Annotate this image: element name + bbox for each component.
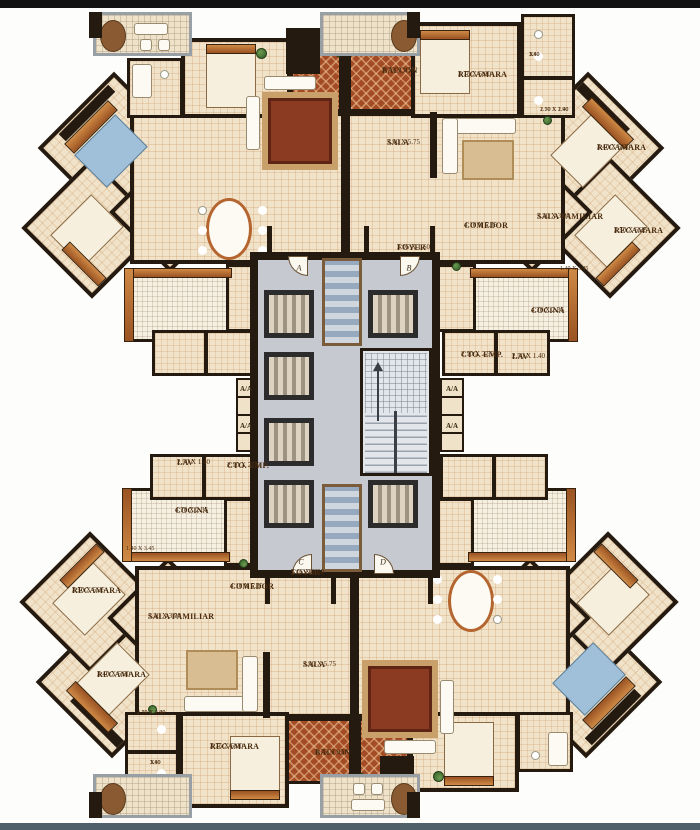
ac-closet-label: A/A [446,385,458,393]
entry-door-letter: C [298,558,303,567]
label-line: 3.40 [529,52,540,60]
label-line: 3.05 X 1.60 [397,243,430,252]
label-line: 3.50 X 5.35 [614,226,647,235]
label-line: 3.75 X 1.50 [382,66,415,75]
label-line: 2.50 X 1.40 [177,458,210,467]
label-line: 4.70 X 2.35 [531,306,564,315]
label-line: 3.05 X 1.60 [291,568,324,577]
label-line: 2.50 X 2.40 [137,710,165,718]
label-line: 3.75 X 5.00 [210,742,243,751]
entry-door-letter: D [380,558,386,567]
label-line: 4.10 X 5.35 [230,582,263,591]
label-line: 1.40 X 3.45 [126,546,154,554]
ac-closet-label: A/A [446,422,458,430]
floor-plan: BALCON3.75 X 1.50RECAMARA3.75 X 5.00SALA… [0,0,700,830]
label-line: 3.40 X 5.50 [597,143,630,152]
label-line: 4.70 X 2.35 [175,506,208,515]
label-line: 2.10 X 2.55 [227,461,260,470]
labels-layer: BALCON3.75 X 1.50RECAMARA3.75 X 5.00SALA… [0,0,700,830]
label-line: 3.75 X 5.00 [458,70,491,79]
label-line: 2.50 X 2.40 [540,107,568,115]
label-line: 3.50 X 5.35 [72,586,105,595]
label-line: 3.90 X 5.75 [387,138,420,147]
entry-door-letter: A [297,264,302,273]
label-line: 3.40 X 5.50 [97,670,130,679]
entry-door-letter: B [407,264,412,273]
label-line: 3.20 X 3.90 [537,212,570,221]
label-line: 3.90 X 5.75 [303,660,336,669]
label-line: 1.40 X 3.45 [560,266,588,274]
label-line: 4.10 X 5.35 [464,221,497,230]
label-line: 2.10 X 2.55 [461,350,494,359]
label-line: 3.75 X 1.50 [315,748,348,757]
ac-closet-label: A/A [240,385,252,393]
label-line: 3.40 [150,760,161,768]
ac-closet-label: A/A [240,422,252,430]
label-line: 3.20 X 3.90 [148,612,181,621]
label-line: 2.50 X 1.40 [512,352,545,361]
